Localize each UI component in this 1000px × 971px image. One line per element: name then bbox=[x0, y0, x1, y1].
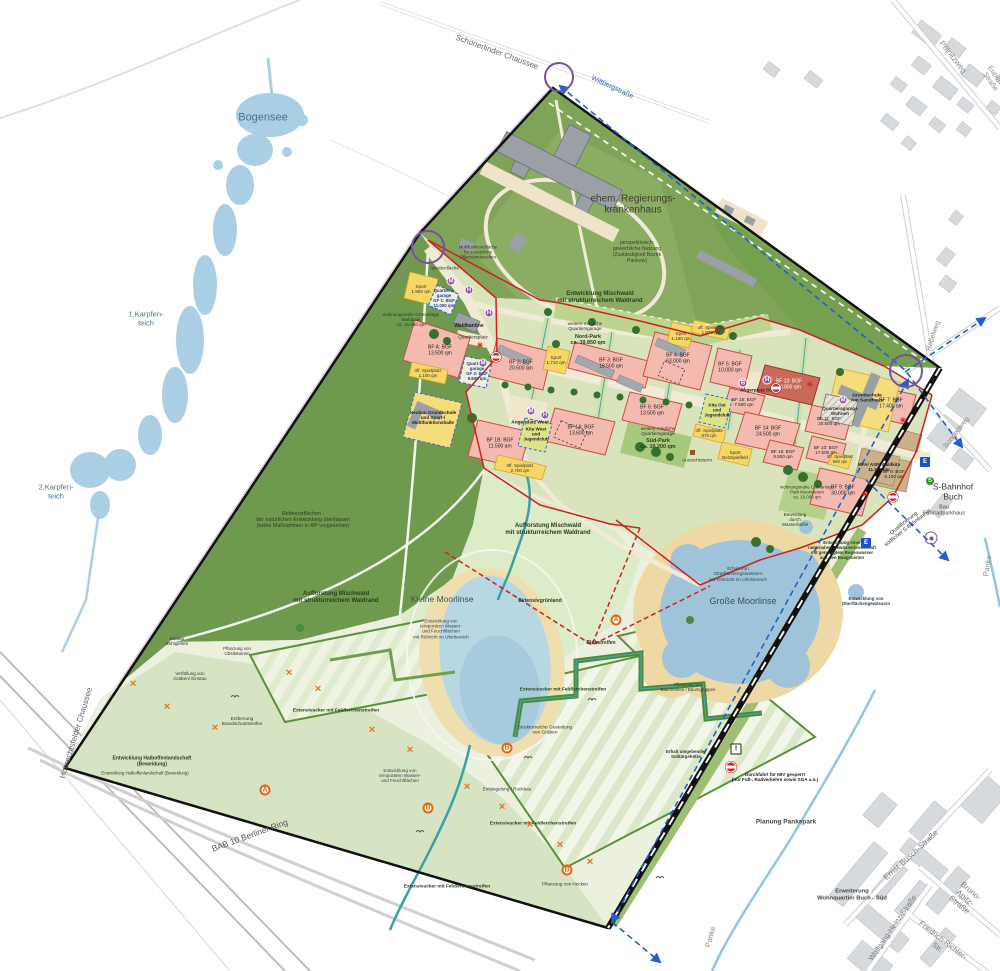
red-star-icon: ✳ bbox=[861, 490, 869, 498]
area-spielplatz-d: öff. Spielplatz 870 qm bbox=[696, 428, 723, 438]
junction-ring-icon bbox=[411, 230, 445, 264]
field-bf-9: BF 9: BGF 30.000 qm bbox=[831, 485, 855, 496]
lake-grosse-moorlinse: Große Moorlinse bbox=[709, 596, 776, 606]
field-bf-1b: BF 1B: BGF 11.500 qm bbox=[487, 438, 514, 449]
area-sport-bolzspielfeld: Sport Bolzspielfeld bbox=[722, 450, 748, 460]
mobility-hub-icon: M bbox=[839, 396, 848, 405]
station-s-bahnhof-buch: S-Bahnhof Buch bbox=[930, 482, 977, 501]
bus-stop-icon: H bbox=[485, 309, 494, 318]
no-entry-icon bbox=[888, 492, 898, 502]
removal-x-icon: ✕ bbox=[498, 803, 507, 812]
lake-karpfenteich-1: 1.Karpfen- teich bbox=[128, 310, 163, 327]
note-aufforstung-2: Aufforstung Mischwald mit strukturreiche… bbox=[505, 523, 590, 537]
plaza-angerplatz-west: Angerplatz West bbox=[511, 420, 549, 425]
note-entsiegelung: Entsiegelung / Rückbau bbox=[483, 786, 532, 791]
field-bf-1a: BF 1A: BGF 13.600 qm bbox=[568, 425, 595, 436]
poi-aussichtsturm-shape bbox=[690, 450, 695, 455]
lake-kleine-moorlinse: Kleine Moorlinse bbox=[411, 595, 474, 605]
note-einbau-sohlgleiten: Einbau Sohlgleiten bbox=[166, 636, 189, 646]
no-entry-icon bbox=[726, 762, 737, 773]
field-bf-5: BF 5: BGF 10.000 qm bbox=[718, 362, 742, 373]
note-erweiterung-wohnquartier: Erweiterung Wohnquartier Buch - Süd bbox=[817, 888, 887, 901]
area-bluehstreifen: Blühstreifen bbox=[586, 641, 615, 647]
bus-stop-icon: H bbox=[763, 376, 772, 385]
area-quartiersplatz: Quartiersplatz bbox=[458, 335, 488, 340]
removal-x-icon: ✕ bbox=[211, 724, 220, 733]
note-durchfahrt-gesperrt: Durchfahrt für MIV gesperrt (nur Fuß-, R… bbox=[732, 772, 818, 782]
area-waldpark: wohnungsnahe Grünanlage Waldpark ca. 16.… bbox=[383, 312, 439, 328]
red-star-icon: ✳ bbox=[476, 341, 484, 349]
note-planung-pankepark: Planung Pankepark bbox=[756, 818, 816, 825]
section-marker-icon: A bbox=[260, 785, 271, 796]
note-erhalt-oberflaechengewaesser: Erhalt von Oberflächengewässern mit Röhr… bbox=[709, 567, 767, 583]
area-sport-ost: Sport 1.190 qm bbox=[671, 331, 690, 341]
removal-x-icon: ✕ bbox=[586, 858, 595, 867]
removal-x-icon: ✕ bbox=[163, 703, 172, 712]
mobility-hub-icon: M bbox=[479, 359, 488, 368]
removal-x-icon: ✕ bbox=[526, 821, 535, 830]
section-marker-icon: A bbox=[611, 615, 622, 626]
area-sued-park: Süd-Park ca. 16.200 qm bbox=[640, 438, 675, 450]
note-regierungskrankenhaus: ehem. Regierungs- krankenhaus bbox=[590, 194, 675, 217]
removal-x-icon: ✕ bbox=[129, 680, 138, 689]
no-entry-icon bbox=[491, 352, 501, 362]
garage-wohnen: Quartiersgarage Wohnen bbox=[822, 406, 858, 416]
junction-ring-icon bbox=[889, 354, 923, 388]
red-star-icon: ✳ bbox=[806, 380, 814, 388]
area-spielplatz-a: öff. Spielplatz 1.100 qm bbox=[415, 368, 442, 378]
area-halboffenlandschaft-2: Entwicklung Halboffenlandschaft (Beweidu… bbox=[101, 772, 188, 777]
removal-x-icon: ✕ bbox=[556, 841, 565, 850]
field-bf-3: BF 3: BGF 18.500 qm bbox=[599, 358, 623, 369]
area-spielplatz-b: öff. Spielplatz 2.700 qm bbox=[507, 463, 534, 473]
note-pflanzung-obstbaeume: Pflanzung von Obstbäumen bbox=[223, 646, 251, 656]
field-bf-4: BF 4: BGF 63.000 qm bbox=[666, 353, 690, 364]
poi-aussichtsturm: Aussichtsturm bbox=[682, 458, 712, 463]
area-multifunktionsflaeche: Multifunktionsfläche für zusätzliche Pfl… bbox=[459, 244, 498, 259]
note-erhalt-solitaergehoelze: Erhalt umgebender Solitärgehölze bbox=[666, 749, 706, 759]
note-verfuellung-graeben: Verfüllung von Gräben/ Einstau bbox=[173, 671, 206, 681]
plaza-angerplatz-ost: Angerplatz Ost bbox=[740, 388, 774, 393]
note-perspektivisch: perspektivisch: gewerbliche Nutzung (Zus… bbox=[613, 241, 661, 265]
area-sport-west: Sport 1.900 qm bbox=[411, 284, 430, 294]
no-entry-icon bbox=[771, 383, 781, 393]
note-temporaere-wasserflaechen-1: Entwicklung von temporären Wasser- und F… bbox=[413, 619, 469, 640]
red-star-icon: ✳ bbox=[899, 416, 907, 424]
note-beweidung-wasserbueffel: Beweidung durch Wasserbüffel bbox=[782, 512, 809, 528]
garage-gf1: Quartiers- garage GF 1: BGF 11.000 qm bbox=[433, 288, 455, 308]
junction-double-icon bbox=[925, 532, 938, 545]
note-gestaltung-graeben: Strukturreiche Gestaltung von Gräben bbox=[518, 726, 572, 737]
note-referenzflaechen: Referenzflächen - der natürlichen Entwic… bbox=[256, 511, 350, 529]
facility-kita-west: Kita West und Jugendclub bbox=[523, 426, 548, 441]
lake-karpfenteich-2: 2.Karpfen- teich bbox=[38, 483, 73, 500]
area-halboffenlandschaft-1: Entwicklung Halboffenlandschaft (Beweidu… bbox=[113, 756, 192, 767]
area-extensivacker-4: Extensivacker mit Feldlerchenstreifen bbox=[404, 884, 490, 889]
field-bf-11: BF 11: BGF 20.500 qm bbox=[817, 416, 841, 426]
lake-bogensee: Bogensee bbox=[238, 112, 288, 125]
section-marker-icon: B bbox=[502, 743, 513, 754]
area-extensivgruenland: Extensivgrünland bbox=[518, 599, 562, 605]
removal-x-icon: ✕ bbox=[314, 685, 323, 694]
field-bf-a: BF A: BGF 13.500 qm bbox=[428, 345, 452, 356]
area-extensivacker-2: Extensivacker mit Feldlerchenstreifen bbox=[293, 708, 379, 713]
bus-stop-icon: H bbox=[541, 411, 550, 420]
building-waldkantine: Waldkantine bbox=[454, 324, 483, 330]
facility-grundschule-am-sandhaus: Grundschule Am Sandhaus bbox=[851, 394, 883, 405]
area-nord-park: Nord-Park ca. 39.850 qm bbox=[570, 334, 605, 346]
note-aufforstung-1: Aufforstung Mischwald mit strukturreiche… bbox=[293, 591, 378, 605]
mobility-hub-icon: B bbox=[739, 379, 748, 388]
area-extensivacker-1: Extensivacker mit Feldlerchenstreifen bbox=[520, 687, 606, 692]
entrance-sign-icon: E bbox=[920, 457, 930, 467]
mobility-hub-icon: M bbox=[527, 407, 536, 416]
facility-mfa-asp-waldkita: MFA/ ASP/ Waldkita 11.170 qm bbox=[858, 462, 900, 472]
field-bf-6: BF 6: BGF 13.500 qm bbox=[640, 405, 664, 416]
junction-ring-icon bbox=[544, 62, 574, 92]
area-spielplatz-e: öff. Spielplatz 660 qm bbox=[827, 454, 853, 464]
facility-grundschule-west: Neubau Grundschule und Sport-/ Multifunk… bbox=[410, 410, 456, 426]
note-entwicklung-oberflaechengewaesser: Entwicklung von Oberflächengewässern bbox=[842, 596, 890, 606]
note-temporaere-wasserflaechen-2: Entwicklung von temporären Wasser- und F… bbox=[379, 768, 421, 784]
entrance-sign-icon: E bbox=[861, 538, 871, 548]
section-marker-icon: B bbox=[562, 865, 573, 876]
note-entwicklung-mischwald: Entwicklung Mischwald mit strukturreiche… bbox=[557, 291, 642, 305]
note-entfernung-brandschutzstreifen: Entfernung Brandschutzstreifen bbox=[222, 716, 263, 726]
removal-x-icon: ✕ bbox=[285, 669, 294, 678]
note-pflanzung-hecken: Pflanzung von Hecken bbox=[542, 881, 588, 886]
removal-x-icon: ✕ bbox=[368, 726, 377, 735]
area-sport-mitte: Sport 1.710 qm bbox=[546, 355, 565, 365]
area-park-moorwiesen: wohnungsnahe Grünanlage Park Moorwiesen … bbox=[780, 484, 834, 499]
field-bf-2: BF 2: BGF 20.500 qm bbox=[509, 360, 533, 371]
field-bf-16: BF 16: BGF 9.500 qm bbox=[771, 449, 795, 459]
bus-stop-icon: H bbox=[465, 286, 474, 295]
section-marker-icon: B bbox=[423, 803, 434, 814]
removal-x-icon: ✕ bbox=[406, 746, 415, 755]
field-bf-15: BF 15: BGF 7.500 qm bbox=[732, 397, 756, 407]
area-weidenflaeche: Weidenfläche bbox=[431, 265, 459, 270]
mobility-hub-icon: M bbox=[447, 277, 456, 286]
note-pflanzung-baumreihen: Pflanzung von Baumreihen / Baumgruppen bbox=[661, 682, 716, 692]
facility-kita-ost: Kita Ost und Jugendclub bbox=[704, 402, 729, 417]
s-bahn-icon: S bbox=[925, 476, 935, 486]
note-suedpark-garage: weitere mögliche Quartiersgarage bbox=[641, 426, 675, 436]
note-nordpark-garage: weitere mögliche Quartiersgarage bbox=[568, 321, 602, 331]
removal-x-icon: ✕ bbox=[463, 783, 472, 792]
area-spielplatz-c: öff. Spielplatz 1.870 qm bbox=[698, 325, 725, 335]
field-bf-14: BF 14: BGF 24.500 qm bbox=[755, 426, 781, 437]
masterplan-map: Bogensee1.Karpfen- teich2.Karpfen- teich… bbox=[0, 0, 1000, 971]
warning-sign-icon: ! bbox=[731, 744, 742, 755]
